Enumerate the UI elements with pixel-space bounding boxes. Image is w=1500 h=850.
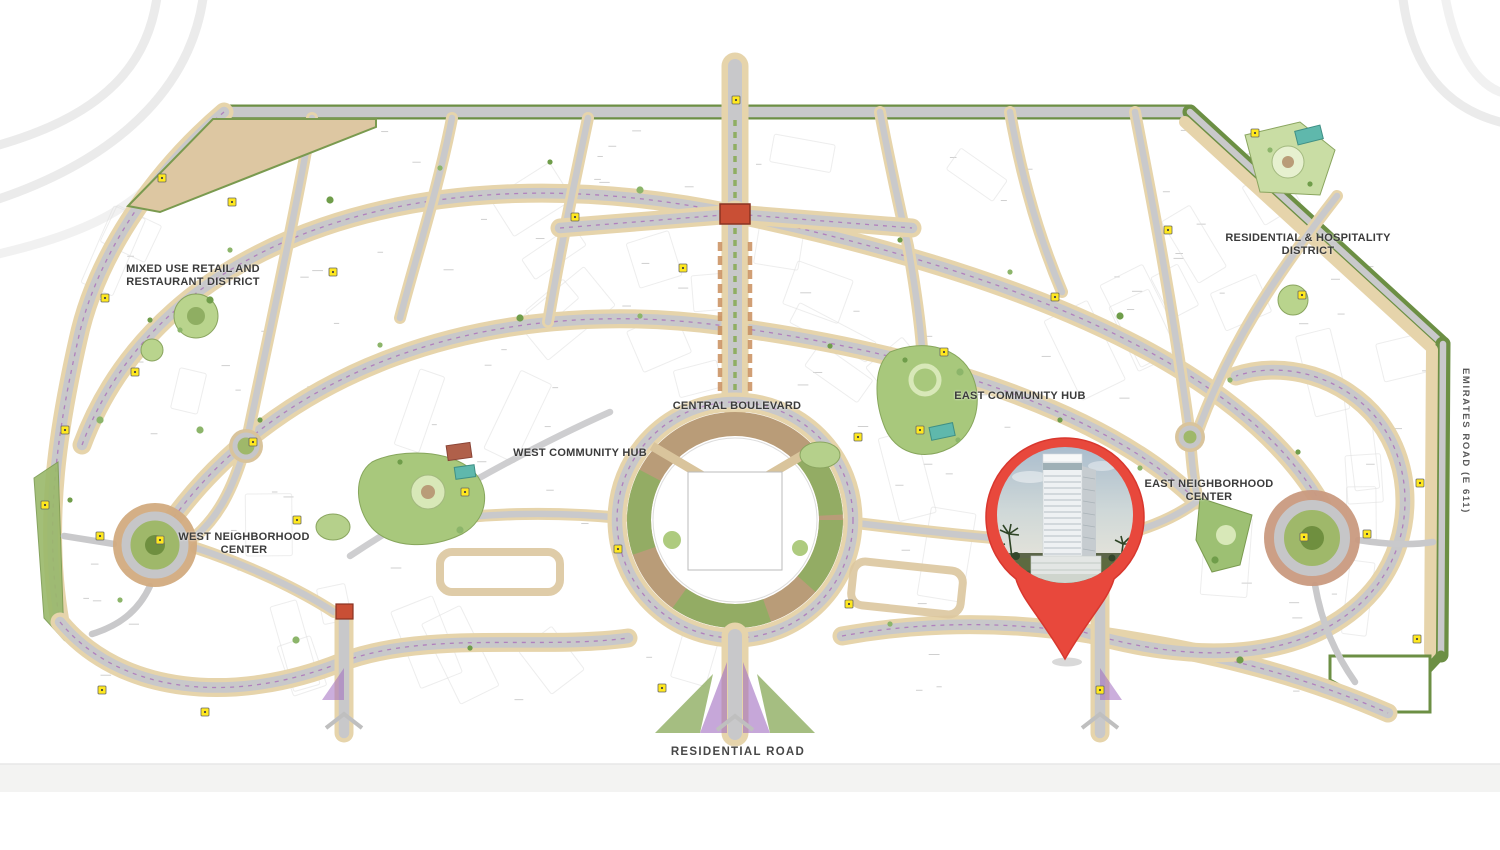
- map-graphic: [0, 0, 1500, 850]
- label-east-neighborhood-center: EAST NEIGHBORHOOD CENTER: [1123, 478, 1295, 504]
- label-residential-road: RESIDENTIAL ROAD: [657, 746, 819, 760]
- masterplan-map: MIXED USE RETAIL AND RESTAURANT DISTRICT…: [0, 0, 1500, 850]
- label-residential-hospitality-district: RESIDENTIAL & HOSPITALITY DISTRICT: [1212, 232, 1404, 258]
- label-west-neighborhood-center: WEST NEIGHBORHOOD CENTER: [154, 531, 334, 557]
- label-west-community-hub: WEST COMMUNITY HUB: [505, 447, 655, 460]
- label-emirates-road: EMIRATES ROAD (E 611): [1460, 368, 1471, 538]
- residential-road-band: [0, 764, 1500, 792]
- east-roundabout: [1264, 490, 1360, 586]
- label-mixed-use-district: MIXED USE RETAIL AND RESTAURANT DISTRICT: [103, 263, 283, 289]
- north-interchange-block: [720, 204, 750, 224]
- west-interchange-block: [336, 604, 353, 619]
- label-central-boulevard: CENTRAL BOULEVARD: [647, 400, 827, 413]
- label-east-community-hub: EAST COMMUNITY HUB: [940, 390, 1100, 403]
